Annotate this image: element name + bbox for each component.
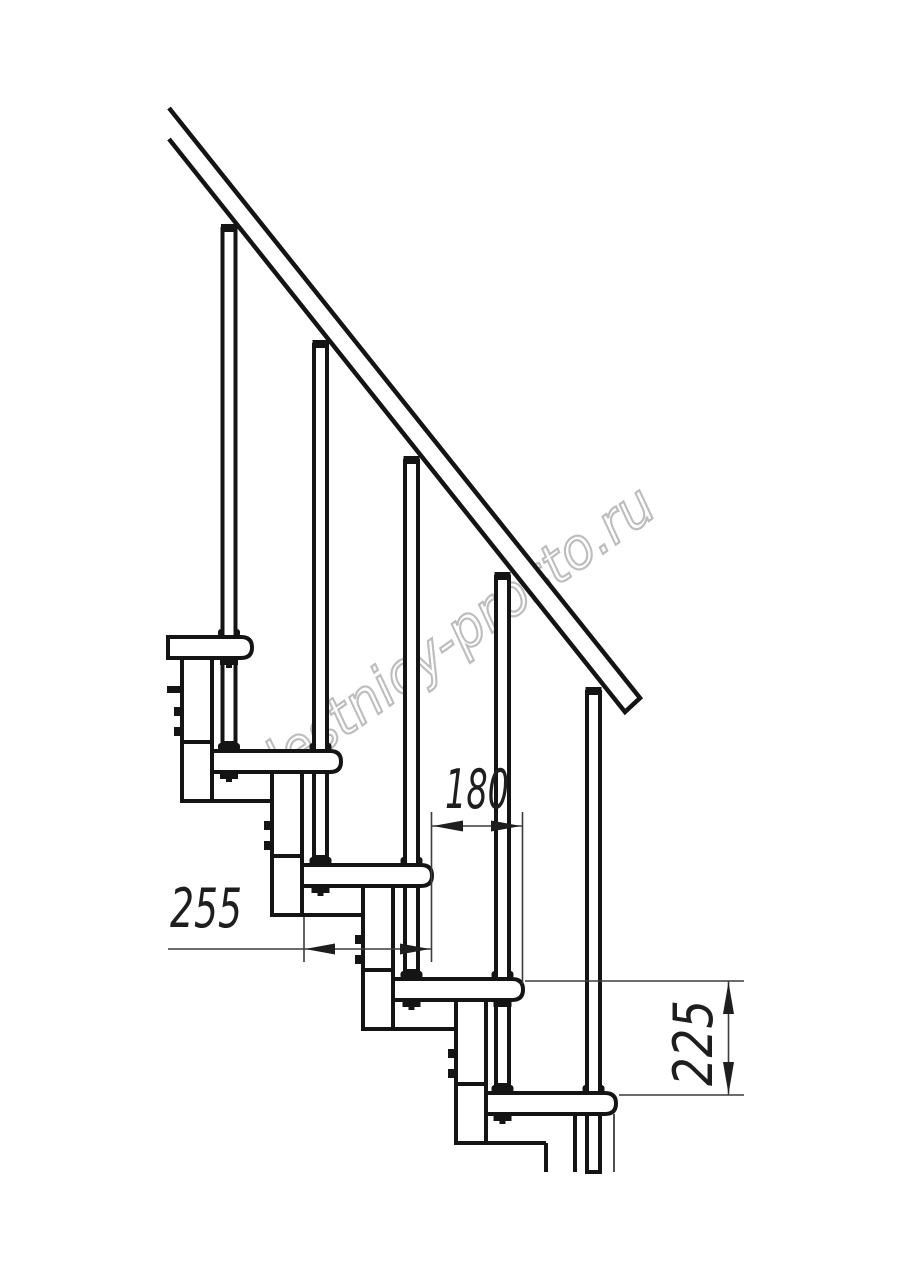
module-plate-3 (272, 772, 302, 915)
module-plate-5 (456, 1000, 486, 1143)
bolt-icon (264, 841, 272, 850)
bolt-icon (167, 686, 182, 693)
bolt-icon (355, 935, 363, 944)
baluster-5 (587, 692, 600, 1093)
arrowhead-left-icon (305, 944, 335, 955)
dimension-tread-depth-value: 255 (170, 877, 242, 940)
baluster-2 (314, 345, 327, 751)
baluster-top-cap (586, 687, 602, 695)
bolt-tab (403, 1000, 421, 1007)
module-plate-2 (182, 658, 212, 801)
bolt-tab (494, 1000, 512, 1007)
dimension-step-rise-value: 225 (662, 1000, 725, 1086)
bolt-icon (448, 1049, 456, 1058)
collar (492, 1085, 514, 1093)
baluster-top-cap (221, 224, 237, 232)
bolt-tab (500, 1121, 506, 1124)
arrowhead-left-icon (433, 821, 463, 832)
collar (310, 857, 332, 865)
support-post-1 (223, 658, 236, 743)
baluster-top-cap (404, 456, 420, 464)
module-plate-4 (363, 886, 393, 1029)
support-post-2 (314, 772, 327, 857)
bolt-icon (264, 821, 272, 830)
tread-2 (212, 751, 341, 772)
bolt-tab (409, 1007, 415, 1010)
bolt-tab (318, 893, 324, 896)
staircase-technical-drawing: lestnicy-prosto.ru (0, 0, 914, 1280)
baluster-1 (223, 229, 236, 637)
tread-4 (393, 979, 523, 1000)
bolt-tab (220, 772, 238, 779)
bolt-tab (226, 665, 232, 668)
bolt-tab (494, 1114, 512, 1121)
bolt-icon (448, 1069, 456, 1078)
bolt-tab (226, 779, 232, 782)
bolt-icon (174, 727, 182, 736)
dimension-step-run-value: 180 (445, 758, 509, 821)
bolt-tab (312, 886, 330, 893)
drawing-sheet: lestnicy-prosto.ru (0, 0, 914, 1280)
support-post-5 (587, 1114, 600, 1172)
support-post-4 (496, 1000, 509, 1085)
bolt-icon (355, 955, 363, 964)
dimension-step-rise: 225 (525, 981, 744, 1095)
support-post-3 (405, 886, 418, 971)
bolt-tab (220, 658, 238, 665)
baluster-top-cap (495, 572, 511, 580)
baluster-top-cap (313, 340, 329, 348)
tread-1 (168, 637, 252, 658)
tread-5 (486, 1093, 616, 1114)
tread-3 (302, 865, 432, 886)
collar (218, 743, 240, 751)
baluster-3 (405, 461, 418, 865)
bolt-icon (174, 707, 182, 716)
collar (401, 971, 423, 979)
